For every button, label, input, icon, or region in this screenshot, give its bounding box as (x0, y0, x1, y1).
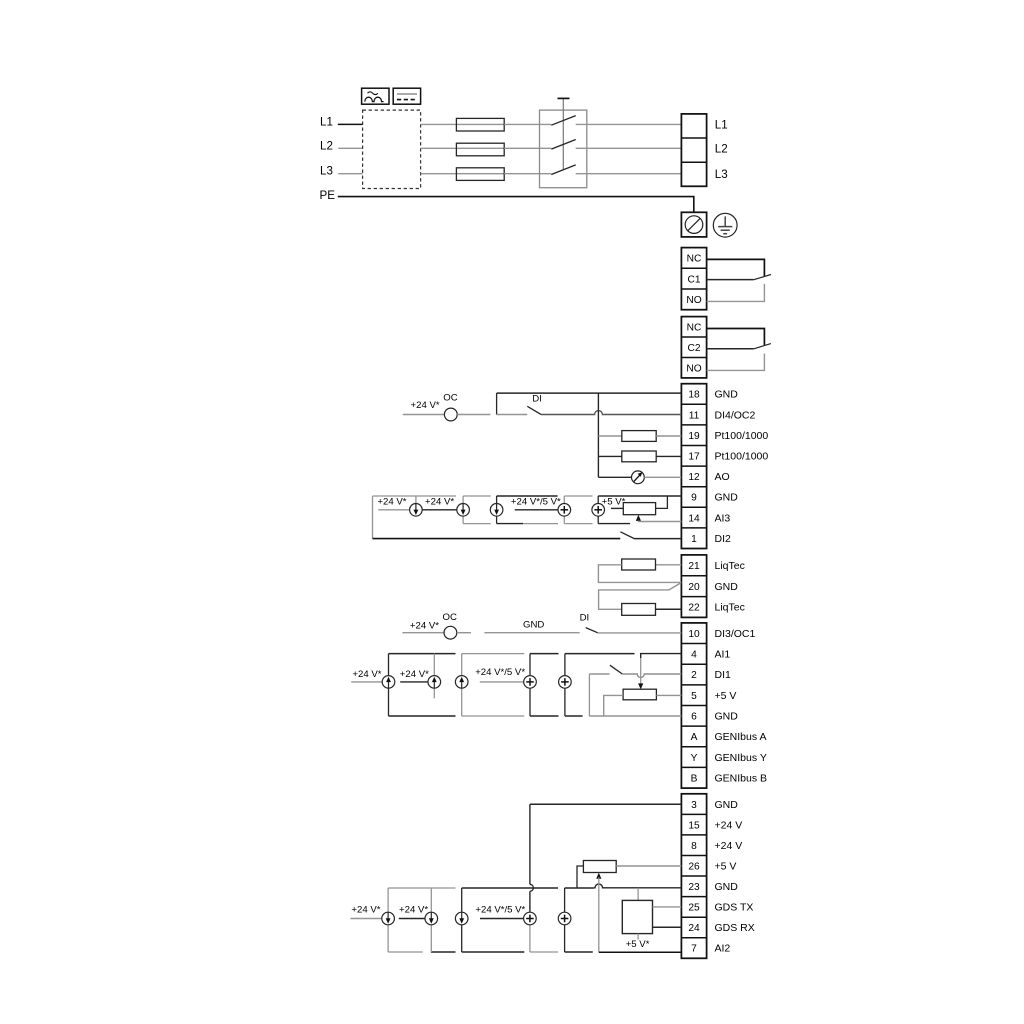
svg-text:NC: NC (687, 254, 702, 265)
svg-text:+24 V*: +24 V* (411, 400, 440, 411)
svg-text:GND: GND (523, 620, 544, 631)
svg-text:GND: GND (715, 492, 739, 504)
svg-text:C2: C2 (687, 343, 700, 354)
svg-text:+24 V*: +24 V* (352, 669, 381, 680)
svg-text:Pt100/1000: Pt100/1000 (715, 430, 769, 442)
svg-text:2: 2 (691, 670, 697, 681)
svg-text:PE: PE (320, 189, 336, 202)
svg-text:15: 15 (688, 820, 700, 831)
svg-text:14: 14 (688, 513, 700, 524)
svg-text:22: 22 (688, 603, 700, 614)
svg-text:LiqTec: LiqTec (715, 602, 745, 614)
svg-text:+24 V*: +24 V* (410, 621, 439, 632)
svg-text:AO: AO (715, 471, 730, 483)
svg-text:GND: GND (715, 581, 739, 593)
svg-text:+24 V*: +24 V* (425, 496, 454, 507)
svg-text:8: 8 (691, 841, 697, 852)
svg-text:DI2: DI2 (715, 533, 732, 545)
svg-text:B: B (691, 774, 698, 785)
svg-text:GENIbus A: GENIbus A (715, 731, 767, 743)
svg-text:+24 V*/5 V*: +24 V*/5 V* (475, 904, 525, 915)
svg-text:A: A (691, 732, 698, 743)
svg-text:NO: NO (686, 363, 701, 374)
svg-text:1: 1 (691, 534, 697, 545)
svg-text:GND: GND (715, 711, 739, 723)
svg-text:21: 21 (688, 561, 700, 572)
svg-text:DI3/OC1: DI3/OC1 (715, 628, 756, 640)
svg-text:17: 17 (688, 452, 700, 463)
svg-text:11: 11 (689, 410, 700, 421)
svg-text:+24 V*: +24 V* (377, 496, 406, 507)
svg-text:Pt100/1000: Pt100/1000 (715, 451, 769, 463)
svg-text:DI4/OC2: DI4/OC2 (715, 409, 756, 421)
svg-text:L3: L3 (320, 165, 333, 178)
svg-text:GND: GND (715, 881, 739, 893)
svg-text:GND: GND (715, 799, 739, 811)
svg-text:DI: DI (532, 393, 542, 404)
svg-text:3: 3 (691, 800, 697, 811)
svg-text:NO: NO (686, 295, 701, 306)
svg-text:24: 24 (688, 923, 700, 934)
svg-text:L2: L2 (320, 140, 333, 153)
svg-text:4: 4 (691, 650, 697, 661)
svg-text:GDS RX: GDS RX (715, 922, 755, 934)
svg-text:AI3: AI3 (715, 512, 731, 524)
svg-text:L1: L1 (715, 119, 728, 132)
svg-text:DI1: DI1 (715, 669, 732, 681)
svg-text:OC: OC (443, 392, 457, 403)
svg-text:+24 V*/5 V*: +24 V*/5 V* (475, 667, 525, 678)
svg-text:+24 V*: +24 V* (351, 904, 380, 915)
svg-text:+5 V*: +5 V* (626, 939, 650, 950)
svg-text:18: 18 (688, 390, 700, 401)
svg-text:10: 10 (688, 629, 700, 640)
svg-text:GDS TX: GDS TX (715, 902, 754, 914)
svg-text:NC: NC (687, 323, 702, 334)
svg-text:AI1: AI1 (715, 649, 731, 661)
svg-text:GND: GND (715, 389, 739, 401)
svg-text:+5 V: +5 V (715, 861, 737, 873)
svg-text:GENIbus B: GENIbus B (715, 773, 768, 785)
svg-text:20: 20 (688, 582, 700, 593)
svg-text:LiqTec: LiqTec (715, 560, 745, 572)
svg-text:25: 25 (688, 903, 700, 914)
svg-text:L3: L3 (715, 168, 728, 181)
svg-text:+24 V*: +24 V* (399, 904, 428, 915)
svg-text:+5 V: +5 V (715, 690, 737, 702)
svg-text:5: 5 (691, 691, 697, 702)
svg-text:9: 9 (691, 493, 697, 504)
svg-text:OC: OC (443, 612, 457, 623)
svg-text:AI2: AI2 (715, 943, 731, 955)
svg-text:12: 12 (688, 472, 700, 483)
svg-text:+24 V: +24 V (715, 840, 743, 852)
svg-text:7: 7 (691, 944, 697, 955)
svg-text:6: 6 (691, 712, 697, 723)
svg-text:26: 26 (688, 862, 700, 873)
svg-text:L1: L1 (320, 116, 333, 129)
svg-text:C1: C1 (687, 274, 700, 285)
svg-text:+5 V*: +5 V* (602, 496, 626, 507)
svg-text:L2: L2 (715, 142, 728, 155)
svg-text:Y: Y (691, 753, 698, 764)
svg-text:+24 V*/5 V*: +24 V*/5 V* (511, 496, 561, 507)
svg-text:+24 V*: +24 V* (400, 669, 429, 680)
svg-text:GENIbus Y: GENIbus Y (715, 752, 767, 764)
svg-text:23: 23 (688, 882, 700, 893)
svg-text:+24 V: +24 V (715, 819, 743, 831)
svg-text:19: 19 (688, 431, 700, 442)
svg-text:DI: DI (580, 613, 590, 624)
